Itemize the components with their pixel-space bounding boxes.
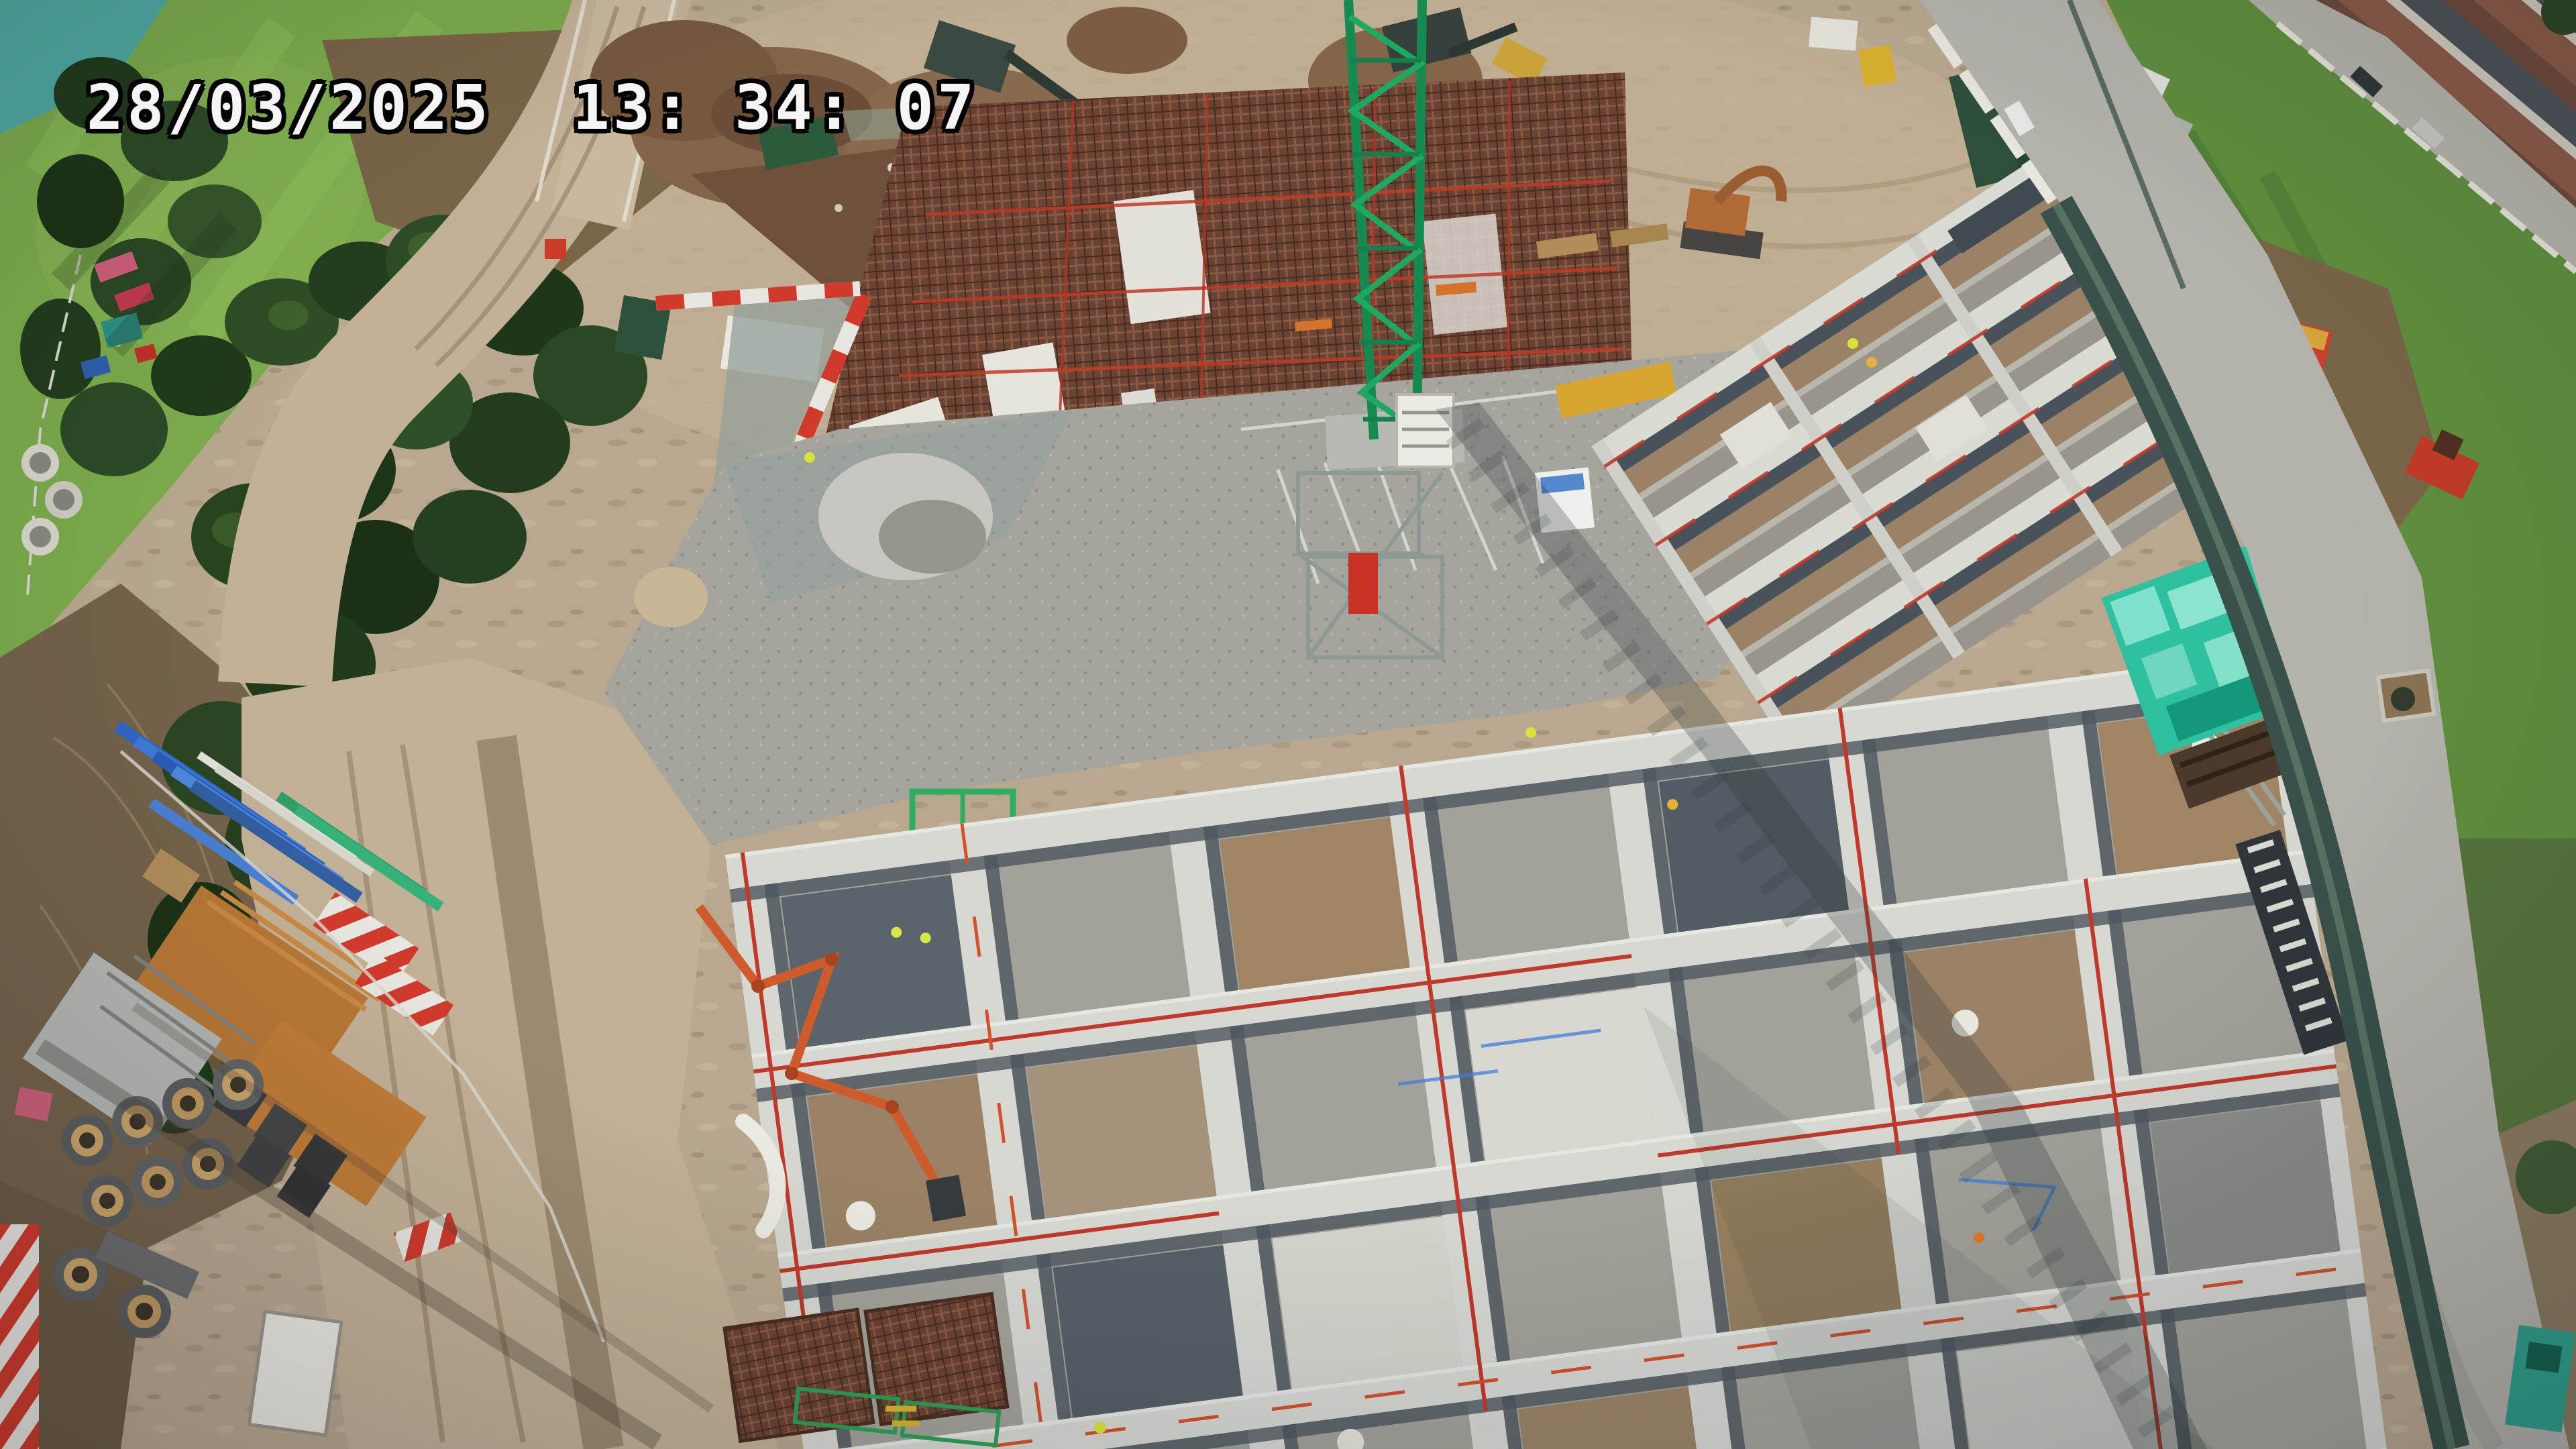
lens-vignette (0, 0, 2576, 1449)
timestamp-overlay: 28/03/2025 13: 34: 07 (5, 0, 977, 144)
timestamp-text: 28/03/2025 13: 34: 07 (87, 72, 978, 144)
construction-camera-frame: 28/03/2025 13: 34: 07 (0, 0, 2576, 1449)
aerial-photo (0, 0, 2576, 1449)
